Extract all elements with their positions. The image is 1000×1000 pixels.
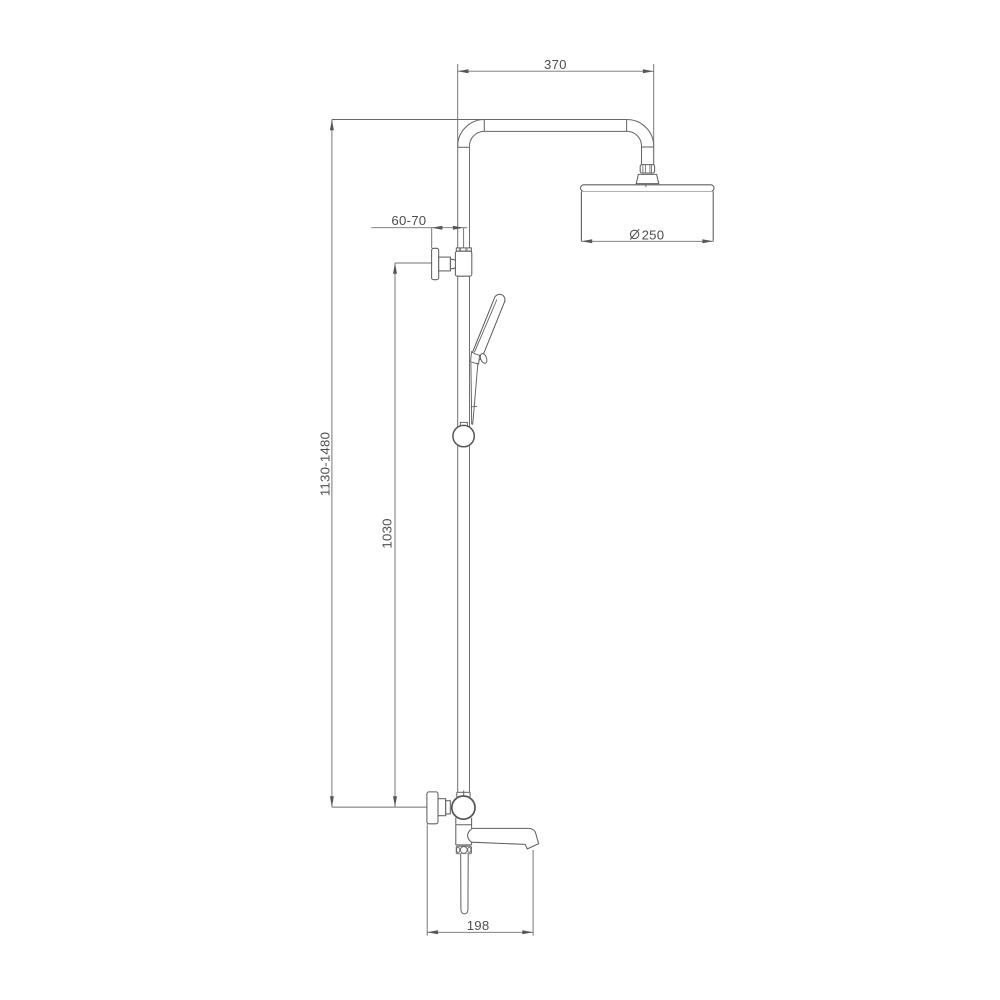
svg-text:60-70: 60-70	[391, 213, 426, 228]
svg-text:1030: 1030	[380, 518, 395, 548]
svg-text:370: 370	[544, 57, 567, 72]
svg-text:1130-1480: 1130-1480	[318, 432, 333, 496]
svg-text:250: 250	[642, 227, 665, 242]
svg-text:198: 198	[467, 918, 490, 933]
